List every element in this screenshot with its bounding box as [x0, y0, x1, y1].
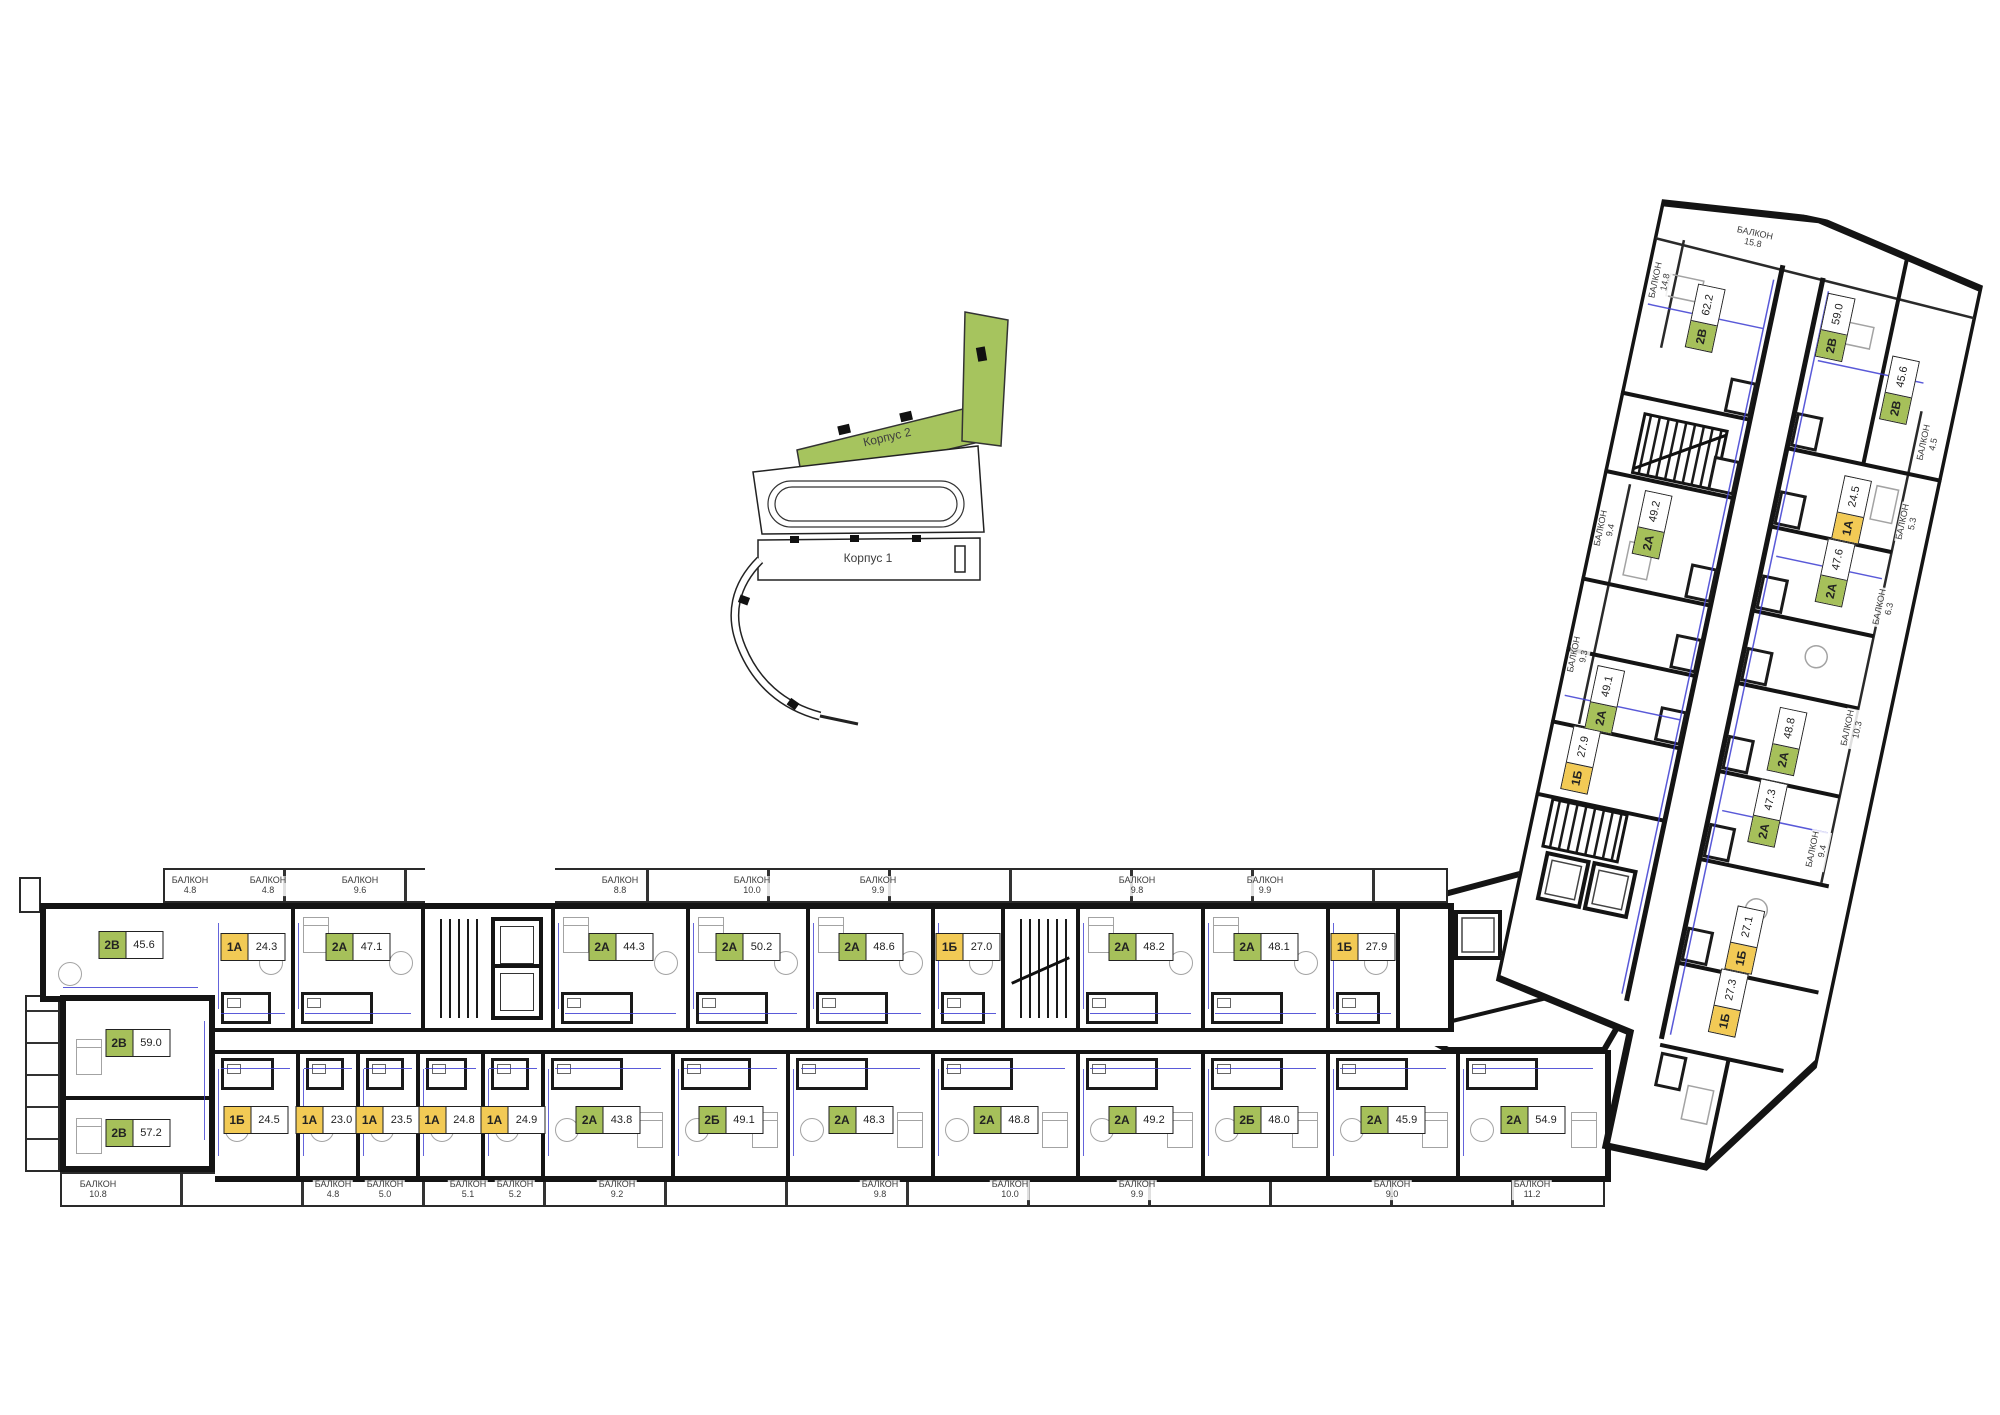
- dimension-line-vertical: [1083, 1069, 1084, 1157]
- unit-area-label: 27.1: [1731, 907, 1764, 949]
- unit-area-label: 49.2: [1135, 1107, 1172, 1133]
- unit-area-label: 49.2: [1638, 491, 1671, 533]
- unit-type-label: 2А: [717, 934, 743, 960]
- table-furniture: [945, 1118, 969, 1142]
- toilet-icon: [947, 998, 961, 1008]
- unit-area-label: 24.5: [250, 1107, 287, 1133]
- bathroom: [301, 992, 373, 1024]
- dimension-line-vertical: [548, 1069, 549, 1157]
- bathroom: [1211, 1058, 1283, 1090]
- balcony-area: 14.8: [1658, 272, 1671, 291]
- unit-type-label: 2В: [106, 1030, 132, 1056]
- bathroom: [941, 992, 985, 1024]
- dimension-line: [1090, 1068, 1192, 1069]
- floorplan-canvas: Корпус 2 Корпус 1: [0, 0, 2000, 1415]
- unit-area-label: 45.6: [1886, 357, 1919, 399]
- balcony-area: 9.3: [1577, 649, 1589, 663]
- unit-area-label: 23.0: [323, 1107, 360, 1133]
- table-furniture: [800, 1118, 824, 1142]
- unit-type-label: 2А: [589, 934, 615, 960]
- unit-area-label: 24.9: [508, 1107, 545, 1133]
- bathroom: [366, 1058, 404, 1090]
- toilet-icon: [497, 1064, 511, 1074]
- balcony-area: 4.5: [1927, 437, 1939, 451]
- unit-tag[interactable]: 2А48.8: [1767, 707, 1808, 776]
- dimension-line: [565, 1013, 675, 1014]
- bed-furniture: [563, 917, 589, 953]
- stairs-pattern: [433, 919, 485, 1018]
- unit-area-label: 50.2: [743, 934, 780, 960]
- dimension-line-vertical: [1083, 923, 1084, 1009]
- dimension-line: [1215, 1068, 1317, 1069]
- dimension-line-vertical: [1208, 923, 1209, 1009]
- balcony-label: БАЛКОН4.5: [1915, 422, 1943, 466]
- unit-tag-anchor: 2А50.2: [716, 933, 781, 961]
- bathroom: [426, 1058, 467, 1090]
- apartment-unit[interactable]: 1А23.5: [360, 1054, 420, 1176]
- apartment-unit[interactable]: 2А45.9: [1330, 1054, 1460, 1176]
- dimension-line: [1090, 1013, 1192, 1014]
- unit-tag-anchor: 2А48.3: [828, 1106, 893, 1134]
- dimension-line-vertical: [678, 1069, 679, 1157]
- unit-tag[interactable]: 2А45.9: [1361, 1106, 1426, 1134]
- bathroom: [696, 992, 768, 1024]
- bathroom: [816, 992, 888, 1024]
- unit-type-label: 2А: [1109, 1107, 1135, 1133]
- apartment-unit[interactable]: 2А48.3: [790, 1054, 935, 1176]
- bathroom: [681, 1058, 751, 1090]
- unit-type-label: 2Б: [1234, 1107, 1260, 1133]
- dimension-line-vertical: [693, 923, 694, 1009]
- unit-type-label: 1А: [357, 1107, 383, 1133]
- balcony-label: БАЛКОН10.3: [1839, 707, 1867, 751]
- unit-tag-anchor: 1Б27.3: [1708, 968, 1749, 1037]
- bed-furniture: [897, 1112, 923, 1148]
- bathroom: [1086, 1058, 1158, 1090]
- bathroom: [561, 992, 633, 1024]
- toilet-icon: [372, 1064, 386, 1074]
- dimension-line-vertical: [558, 923, 559, 1009]
- bathroom: [941, 1058, 1013, 1090]
- unit-tag[interactable]: 2А48.3: [828, 1106, 893, 1134]
- bathroom: [1336, 992, 1380, 1024]
- unit-type-label: 2А: [1234, 934, 1260, 960]
- unit-area-label: 48.8: [1000, 1107, 1037, 1133]
- unit-area-label: 45.6: [125, 932, 162, 958]
- apartment-row-top: 1А24.32А47.12А44.32А50.22А48.61Б27.02А48…: [215, 903, 1454, 1032]
- table-furniture: [389, 951, 413, 975]
- bathroom: [221, 992, 271, 1024]
- dimension-line: [801, 1068, 919, 1069]
- toilet-icon: [687, 1064, 701, 1074]
- unit-tag-anchor: 2А47.1: [326, 933, 391, 961]
- unit-area-label: 27.3: [1714, 970, 1747, 1012]
- unit-tag-anchor: 2А48.8: [973, 1106, 1038, 1134]
- apartment-unit[interactable]: 1А24.3: [215, 909, 295, 1028]
- dimension-line-vertical: [298, 923, 299, 1009]
- unit-tag-anchor: 1А24.9: [481, 1106, 546, 1134]
- dimension-line-vertical: [793, 1069, 794, 1157]
- dimension-line: [425, 1068, 476, 1069]
- dimension-line-vertical: [813, 923, 814, 1009]
- unit-tag-anchor: 1А23.5: [356, 1106, 421, 1134]
- unit-tag[interactable]: 1А24.5: [1831, 475, 1872, 544]
- unit-tag[interactable]: 1А23.5: [356, 1106, 421, 1134]
- unit-area-label: 24.5: [1838, 476, 1871, 518]
- corridor-lobby: [1400, 909, 1448, 1028]
- unit-type-label: 1А: [482, 1107, 508, 1133]
- unit-tag[interactable]: 2А47.3: [1747, 778, 1788, 847]
- unit-tag-anchor: 2В59.0: [1815, 293, 1856, 362]
- toilet-icon: [567, 998, 581, 1008]
- dimension-line: [820, 1013, 922, 1014]
- unit-type-label: 1Б: [1332, 934, 1358, 960]
- site-locator-map: Корпус 2 Корпус 1: [735, 312, 1008, 724]
- unit-tag[interactable]: 1Б27.9: [1331, 933, 1396, 961]
- unit-tag-anchor: 1Б27.0: [936, 933, 1001, 961]
- elevator-shaft: [491, 964, 543, 1020]
- unit-area-label: 48.1: [1260, 934, 1297, 960]
- unit-area-label: 59.0: [1821, 294, 1854, 336]
- dimension-line-vertical: [1208, 1069, 1209, 1157]
- toilet-icon: [1092, 998, 1106, 1008]
- unit-tag[interactable]: 2А48.8: [973, 1106, 1038, 1134]
- unit-tag-anchor: 1Б27.9: [1331, 933, 1396, 961]
- balcony-area: 9.4: [1816, 844, 1828, 858]
- unit-tag-anchor: 2А43.8: [576, 1106, 641, 1134]
- unit-type-label: 2А: [974, 1107, 1000, 1133]
- unit-type-label: 1А: [222, 934, 248, 960]
- unit-tag-anchor: 2Б49.1: [698, 1106, 763, 1134]
- apartment-unit[interactable]: 2Б48.0: [1205, 1054, 1330, 1176]
- unit-area-label: 49.1: [725, 1107, 762, 1133]
- balcony-area: 10.3: [1850, 720, 1863, 739]
- unit-type-label: 2Б: [699, 1107, 725, 1133]
- unit-type-label: 2А: [327, 934, 353, 960]
- bathroom: [306, 1058, 344, 1090]
- dimension-line: [364, 1068, 411, 1069]
- dimension-line: [304, 1068, 351, 1069]
- unit-type-label: 2А: [577, 1107, 603, 1133]
- apartment-unit[interactable]: 2А43.8: [545, 1054, 675, 1176]
- unit-area-label: 27.9: [1358, 934, 1395, 960]
- balcony-label: БАЛКОН9.4: [1804, 829, 1832, 873]
- balcony-band-top: [163, 868, 1448, 903]
- unit-area-label: 57.2: [132, 1120, 169, 1146]
- unit-tag-anchor: 2В45.6: [1879, 356, 1920, 425]
- apartment-unit[interactable]: 2А47.1: [295, 909, 425, 1028]
- apartment-unit[interactable]: 1А24.8: [420, 1054, 485, 1176]
- apartment-unit[interactable]: 1Б27.0: [935, 909, 1005, 1028]
- dimension-line: [221, 1013, 285, 1014]
- balcony-band-left: [25, 995, 60, 1172]
- unit-area-label: 48.6: [865, 934, 902, 960]
- unit-area-label: 24.3: [248, 934, 285, 960]
- unit-tag-anchor: 1Б27.9: [1560, 725, 1601, 794]
- unit-type-label: 1А: [419, 1107, 445, 1133]
- unit-tag[interactable]: 2А50.2: [716, 933, 781, 961]
- unit-area-label: 24.8: [445, 1107, 482, 1133]
- balcony-area: 6.3: [1883, 602, 1895, 616]
- unit-tag[interactable]: 1Б27.9: [1560, 725, 1601, 794]
- bathroom: [551, 1058, 623, 1090]
- apartment-unit[interactable]: 2А48.8: [935, 1054, 1080, 1176]
- unit-tag[interactable]: 1А24.9: [481, 1106, 546, 1134]
- unit-tag[interactable]: 2В59.0: [1815, 293, 1856, 362]
- unit-tag[interactable]: 1Б27.0: [936, 933, 1001, 961]
- dimension-line-vertical: [218, 1069, 219, 1157]
- stair-elevator-core: [425, 909, 555, 1028]
- unit-tag[interactable]: 1А23.0: [296, 1106, 361, 1134]
- unit-tag[interactable]: 2А47.1: [326, 933, 391, 961]
- balcony-label: БАЛКОН5.3: [1894, 501, 1922, 545]
- balcony-label: БАЛКОН6.3: [1871, 586, 1899, 630]
- unit-type-label: 1Б: [224, 1107, 250, 1133]
- unit-tag-anchor: 2А49.1: [1584, 665, 1625, 734]
- balcony-label: БАЛКОН9.4: [1592, 507, 1620, 551]
- locator-building1-label: Корпус 1: [844, 551, 893, 565]
- unit-tag[interactable]: 2А44.3: [588, 933, 653, 961]
- unit-tag[interactable]: 2А47.6: [1815, 538, 1856, 607]
- unit-tag-anchor: 2А47.3: [1747, 778, 1788, 847]
- unit-tag[interactable]: 2А48.2: [1108, 933, 1173, 961]
- dimension-line: [1215, 1013, 1317, 1014]
- apartment-unit[interactable]: 2А50.2: [690, 909, 810, 1028]
- unit-area-label: 45.9: [1388, 1107, 1425, 1133]
- dimension-line: [305, 1013, 411, 1014]
- unit-tag-anchor: 2А45.9: [1361, 1106, 1426, 1134]
- unit-tag-anchor: 2А48.8: [1767, 707, 1808, 776]
- unit-tag[interactable]: 2А49.2: [1108, 1106, 1173, 1134]
- toilet-icon: [227, 998, 241, 1008]
- apartment-unit[interactable]: 2Б49.1: [675, 1054, 790, 1176]
- toilet-icon: [1342, 1064, 1356, 1074]
- unit-type-label: 2В: [106, 1120, 132, 1146]
- balcony-area: 9.4: [1604, 523, 1616, 537]
- unit-tag-anchor: 1Б24.5: [223, 1106, 288, 1134]
- toilet-icon: [1217, 998, 1231, 1008]
- unit-type-label: 2А: [1362, 1107, 1388, 1133]
- unit-tag[interactable]: 1Б27.1: [1724, 905, 1765, 974]
- unit-area-label: 47.6: [1821, 539, 1854, 581]
- apartment-unit[interactable]: 1Б27.9: [1330, 909, 1400, 1028]
- unit-area-label: 27.0: [963, 934, 1000, 960]
- balcony-label: БАЛКОН9.3: [1565, 634, 1593, 678]
- toilet-icon: [557, 1064, 571, 1074]
- unit-tag[interactable]: 2А49.2: [1632, 490, 1673, 559]
- toilet-icon: [947, 1064, 961, 1074]
- bathroom: [1211, 992, 1283, 1024]
- unit-tag[interactable]: 2А49.1: [1584, 665, 1625, 734]
- unit-tag-anchor: 1А24.3: [221, 933, 286, 961]
- unit-tag[interactable]: 2В57.2: [105, 1119, 170, 1147]
- unit-tag[interactable]: 2А48.6: [838, 933, 903, 961]
- balcony-band-top-gap: [425, 866, 555, 905]
- dimension-line: [489, 1068, 536, 1069]
- dimension-line-vertical: [218, 923, 219, 1009]
- unit-tag-anchor: 1А23.0: [296, 1106, 361, 1134]
- unit-area-label: 49.1: [1591, 666, 1624, 708]
- bathroom: [796, 1058, 868, 1090]
- bed-furniture: [637, 1112, 663, 1148]
- toilet-icon: [312, 1064, 326, 1074]
- unit-tag-anchor: 2В62.2: [1685, 284, 1726, 353]
- balcony-label: БАЛКОН14.8: [1647, 259, 1675, 303]
- unit-area-label: 44.3: [615, 934, 652, 960]
- dimension-line-vertical: [1333, 1069, 1334, 1157]
- unit-tag[interactable]: 2А43.8: [576, 1106, 641, 1134]
- unit-tag[interactable]: 2В45.6: [98, 931, 163, 959]
- apartment-unit[interactable]: 2А48.6: [810, 909, 935, 1028]
- unit-tag[interactable]: 2Б49.1: [698, 1106, 763, 1134]
- toilet-icon: [802, 1064, 816, 1074]
- bed-furniture: [1422, 1112, 1448, 1148]
- dimension-line: [221, 1068, 289, 1069]
- elevator-car: [500, 973, 534, 1011]
- toilet-icon: [227, 1064, 241, 1074]
- unit-tag-anchor: 2А44.3: [588, 933, 653, 961]
- unit-area-label: 47.3: [1754, 780, 1787, 822]
- unit-tag[interactable]: 1Б24.5: [223, 1106, 288, 1134]
- apartment-row-bottom: 1Б24.51А23.01А23.51А24.81А24.92А43.82Б49…: [215, 1050, 1611, 1182]
- toilet-icon: [702, 998, 716, 1008]
- unit-type-label: 2А: [1109, 934, 1135, 960]
- unit-area-label: 47.1: [353, 934, 390, 960]
- bathroom: [491, 1058, 529, 1090]
- apartment-unit[interactable]: 1А24.9: [485, 1054, 545, 1176]
- unit-area-label: 23.5: [383, 1107, 420, 1133]
- unit-area-label: 48.0: [1260, 1107, 1297, 1133]
- apartment-unit[interactable]: 2А48.1: [1205, 909, 1330, 1028]
- dimension-line-vertical: [938, 1069, 939, 1157]
- apartment-unit[interactable]: 1А23.0: [300, 1054, 360, 1176]
- unit-area-label: 43.8: [603, 1107, 640, 1133]
- apartment-unit[interactable]: 1Б24.5: [215, 1054, 300, 1176]
- dimension-line: [555, 1068, 661, 1069]
- apartment-unit[interactable]: 2А48.2: [1080, 909, 1205, 1028]
- toilet-icon: [1342, 998, 1356, 1008]
- unit-tag-anchor: 2А47.6: [1815, 538, 1856, 607]
- dimension-line: [699, 1013, 796, 1014]
- corner-unit-top-left[interactable]: 2В45.6: [40, 903, 215, 1002]
- unit-divider-wall: [66, 1096, 209, 1100]
- unit-area-label: 27.9: [1567, 727, 1600, 769]
- unit-type-label: 2А: [839, 934, 865, 960]
- unit-area-label: 48.2: [1135, 934, 1172, 960]
- toilet-icon: [1092, 1064, 1106, 1074]
- unit-tag-anchor: 1Б27.1: [1724, 905, 1765, 974]
- unit-tag[interactable]: 2В45.6: [1879, 356, 1920, 425]
- bathroom: [1086, 992, 1158, 1024]
- unit-type-label: 2В: [99, 932, 125, 958]
- unit-area-label: 62.2: [1691, 285, 1724, 327]
- unit-tag-anchor: 2Б48.0: [1233, 1106, 1298, 1134]
- staircase: [1005, 909, 1080, 1028]
- unit-tag[interactable]: 1Б27.3: [1708, 968, 1749, 1037]
- dimension-line: [946, 1068, 1064, 1069]
- unit-tag-anchor: 1А24.5: [1831, 475, 1872, 544]
- unit-tag-anchor: 2А48.6: [838, 933, 903, 961]
- table-furniture: [654, 951, 678, 975]
- dimension-line: [1335, 1013, 1390, 1014]
- dimension-line: [940, 1013, 995, 1014]
- balcony-label: БАЛКОН15.8: [1732, 225, 1776, 253]
- apartment-unit[interactable]: 2А49.2: [1080, 1054, 1205, 1176]
- dimension-line: [684, 1068, 777, 1069]
- unit-tag[interactable]: 1А24.8: [418, 1106, 483, 1134]
- bathroom: [221, 1058, 274, 1090]
- elevator-car: [500, 926, 534, 964]
- toilet-icon: [1217, 1064, 1231, 1074]
- dimension-line: [1340, 1068, 1446, 1069]
- dimension-line-vertical: [1463, 1069, 1464, 1157]
- unit-tag-anchor: 2А48.2: [1108, 933, 1173, 961]
- apartment-unit[interactable]: 2А44.3: [555, 909, 690, 1028]
- unit-tag[interactable]: 2Б48.0: [1233, 1106, 1298, 1134]
- corner-unit-block-left[interactable]: 2В59.0 2В57.2: [60, 995, 215, 1172]
- toilet-icon: [432, 1064, 446, 1074]
- unit-area-label: 59.0: [132, 1030, 169, 1056]
- unit-tag-anchor: 1А24.8: [418, 1106, 483, 1134]
- locator-building2-shape-vertical[interactable]: [962, 312, 1008, 446]
- unit-type-label: 2А: [829, 1107, 855, 1133]
- unit-tag-anchor: 2А49.2: [1108, 1106, 1173, 1134]
- unit-tag-anchor: 2А49.2: [1632, 490, 1673, 559]
- toilet-icon: [822, 998, 836, 1008]
- unit-tag[interactable]: 2В62.2: [1685, 284, 1726, 353]
- unit-type-label: 1А: [297, 1107, 323, 1133]
- unit-tag-anchor: 2А48.1: [1233, 933, 1298, 961]
- unit-tag[interactable]: 1А24.3: [221, 933, 286, 961]
- bathroom: [1336, 1058, 1408, 1090]
- unit-area-label: 48.8: [1773, 708, 1806, 750]
- unit-area-label: 48.3: [855, 1107, 892, 1133]
- unit-tag[interactable]: 2А48.1: [1233, 933, 1298, 961]
- unit-tag[interactable]: 2В59.0: [105, 1029, 170, 1057]
- unit-type-label: 1Б: [937, 934, 963, 960]
- balcony-area: 5.3: [1906, 517, 1918, 531]
- toilet-icon: [307, 998, 321, 1008]
- bed-furniture: [1042, 1112, 1068, 1148]
